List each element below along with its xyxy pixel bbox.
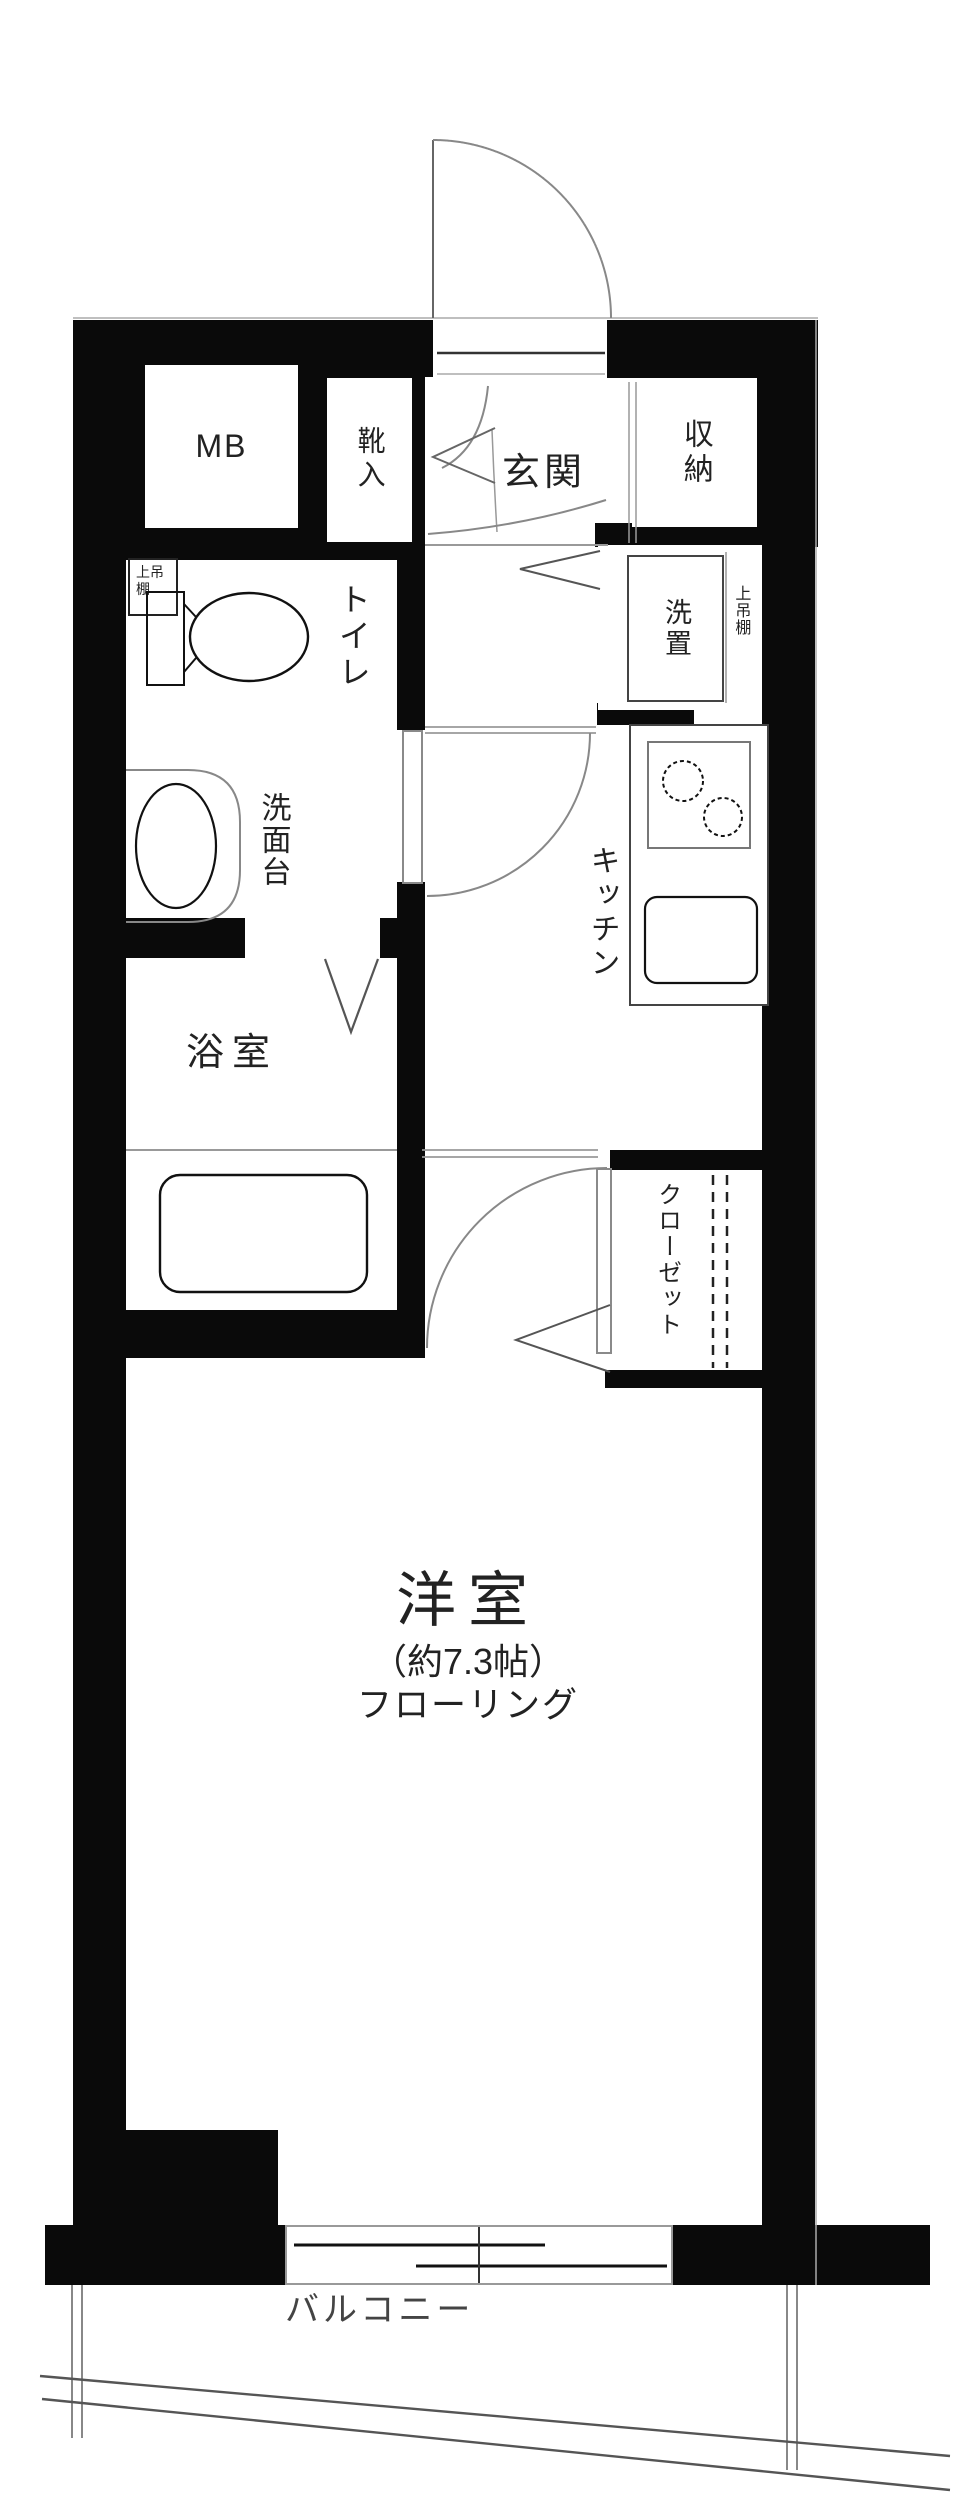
wall-left-column	[73, 320, 126, 2285]
storage-label: 収納	[677, 418, 712, 488]
kitchen-label: キッチン	[584, 845, 619, 981]
wall-bottom-left-pillar	[73, 2130, 278, 2230]
washer-machine-box: 洗置	[627, 555, 724, 702]
kitchen-sink-icon	[645, 897, 757, 983]
wall-bath-bottom	[73, 1310, 425, 1358]
toilet-join-line	[184, 658, 196, 672]
corridor-door-arc	[427, 733, 590, 896]
meter-box: MB	[145, 365, 298, 528]
washroom-door-fold-mark	[520, 551, 600, 589]
wall-bottom-band-left	[45, 2225, 285, 2285]
room-door-arc	[427, 1168, 607, 1348]
vanity-sink-icon	[136, 784, 216, 908]
toilet-label: トイレ	[334, 583, 371, 691]
meter-box-label: MB	[196, 428, 248, 465]
storage-closet: 収納	[632, 378, 757, 527]
washer-shelf-label: 上吊棚	[731, 585, 749, 636]
main-room-flooring: フローリング	[268, 1686, 668, 1726]
wall-bath-top-stub	[380, 918, 425, 958]
shoe-cabinet-label: 靴入	[353, 426, 385, 494]
bathtub-icon	[160, 1175, 367, 1292]
wall-washroom-right-upper	[397, 555, 425, 730]
entrance-door-opening	[433, 320, 607, 378]
entrance-label: 玄関	[502, 452, 586, 496]
toilet-shelf-label: 上吊棚	[130, 560, 168, 598]
shoe-door-fold-mark	[433, 428, 495, 483]
main-room-text: 洋室 （約7.3帖） フローリング	[268, 1566, 668, 1727]
balcony-edge-line	[42, 2399, 950, 2490]
toilet-bowl-icon	[190, 593, 308, 681]
balcony-label: バルコニー	[285, 2291, 474, 2330]
wall-bath-top-left	[73, 918, 245, 958]
room-door-leaf	[596, 1168, 612, 1354]
bath-door-fold-mark	[325, 959, 378, 1032]
wall-closet-top	[610, 1150, 765, 1170]
wall-closet-bottom	[605, 1370, 765, 1388]
closet-label: クローゼット	[653, 1182, 681, 1338]
floor-plan: MB 靴入 収納 洗置 上吊棚 上吊棚	[0, 0, 960, 2519]
entrance-door-arc	[433, 140, 611, 318]
corridor-door-leaf	[402, 730, 423, 884]
washer-label: 洗置	[660, 598, 691, 660]
toilet-join-line	[184, 604, 196, 617]
balcony-edge-line	[40, 2376, 950, 2456]
vanity-label: 洗面台	[255, 792, 290, 888]
stove-burner-icon	[663, 761, 703, 801]
main-room-name: 洋室	[268, 1566, 668, 1635]
stove-burner-icon	[704, 798, 742, 836]
main-room-size: （約7.3帖）	[268, 1641, 668, 1682]
wall-bottom-band-right	[673, 2225, 930, 2285]
genkan-arc2	[492, 430, 497, 532]
genkan-step-curve	[428, 500, 606, 534]
bath-label: 浴室	[186, 1032, 278, 1076]
kitchen-counter	[630, 725, 768, 1005]
wall-right-column-upper	[757, 320, 818, 545]
wall-right-column	[762, 545, 815, 2235]
stove-top	[648, 742, 750, 848]
genkan-arc1	[442, 386, 488, 468]
toilet-shelf-box: 上吊棚	[128, 558, 178, 616]
balcony-window	[285, 2225, 673, 2285]
shoe-cabinet: 靴入	[327, 378, 412, 542]
vanity-counter	[126, 770, 240, 922]
